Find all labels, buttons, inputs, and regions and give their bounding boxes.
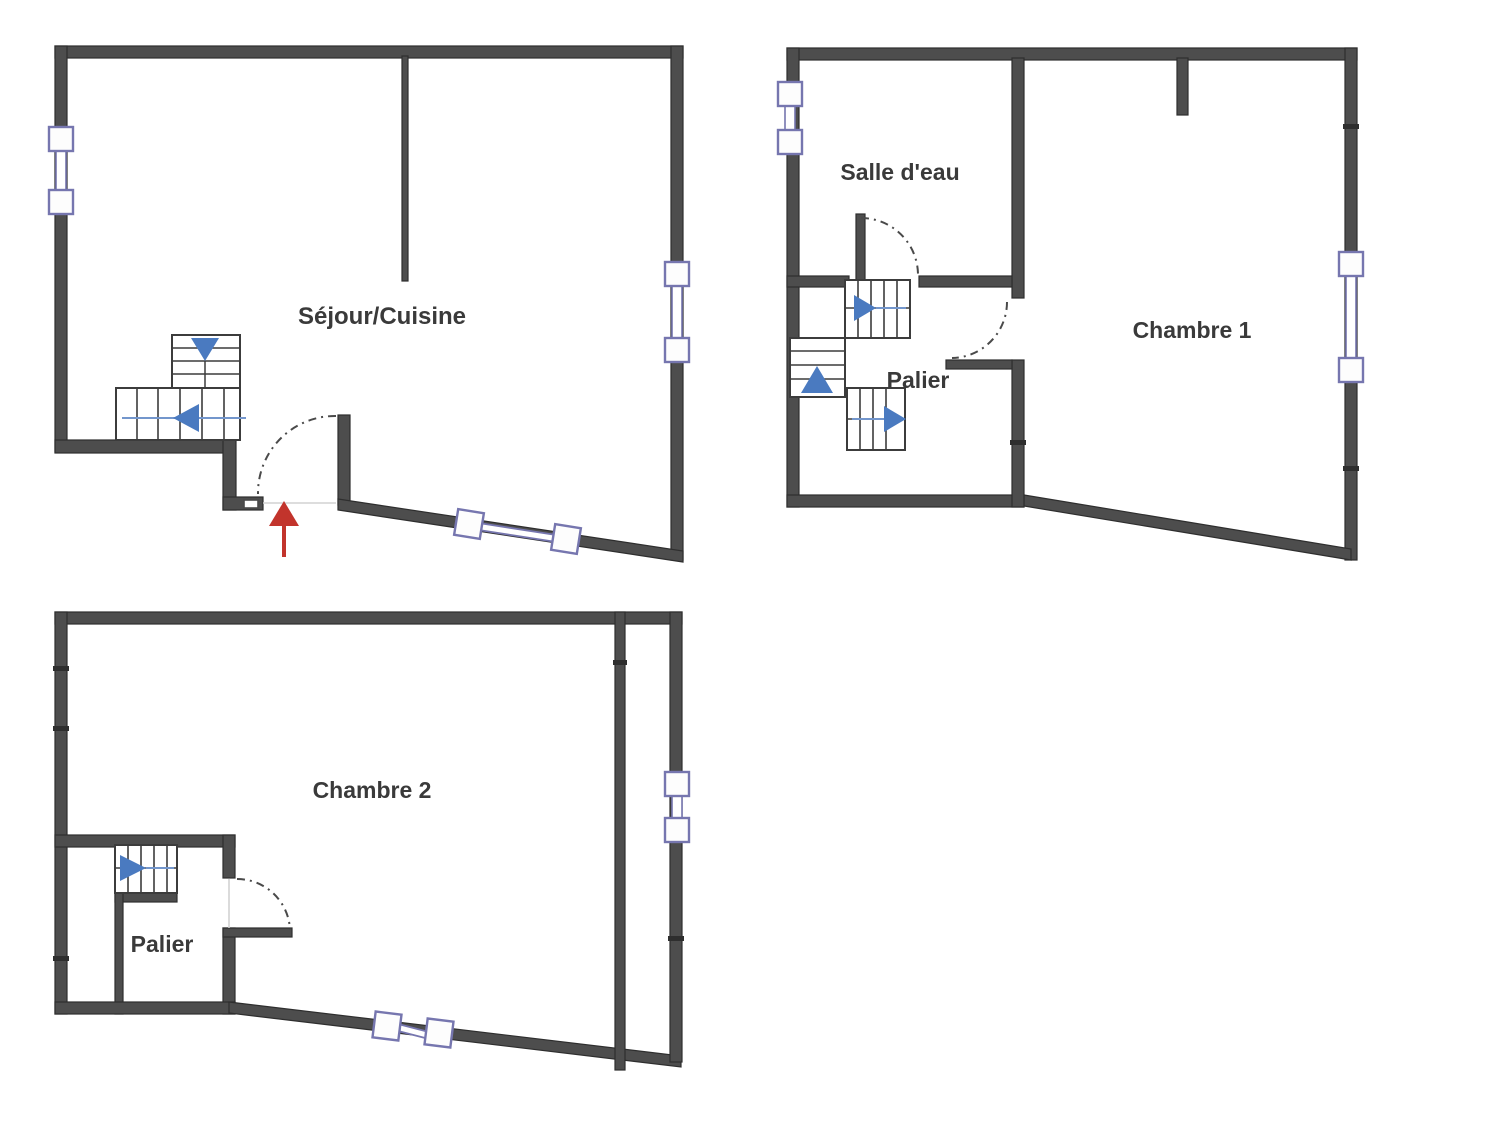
window-symbol-right [1339,252,1363,382]
room-label-chambre-1: Chambre 1 [1133,317,1252,343]
floor-plan-first: Salle d'eau Chambre 1 Palier [778,48,1363,560]
entrance-door [244,416,336,508]
window-symbol-right [665,772,689,842]
window-symbol-diagonal [373,1012,454,1048]
room-label-sejour-cuisine: Séjour/Cuisine [298,303,466,330]
window-symbol-diagonal [454,509,581,554]
room-label-palier-first: Palier [887,367,950,393]
landing-door [229,879,290,930]
diagonal-wall [1024,495,1351,560]
door-leaf [244,500,258,508]
inner-wall [615,612,625,1070]
room-label-chambre-2: Chambre 2 [313,777,432,803]
door-swing-arc [237,879,290,930]
staircase-second [115,845,177,893]
door-leaf [856,214,865,282]
room-label-palier-second: Palier [131,931,194,957]
door-swing-arc [258,416,336,494]
window-symbol-right [665,262,689,362]
staircase-ground [116,335,246,440]
room-label-salle-deau: Salle d'eau [840,159,959,185]
entrance-arrow [269,501,299,557]
diagonal-wall [229,1002,681,1067]
floor-plan-second: Chambre 2 Palier [53,612,689,1070]
floor-plan-ground: Séjour/Cuisine [49,46,689,562]
floor-plan-page: Séjour/Cuisine [0,0,1500,1125]
window-symbol-left [49,127,73,214]
floor-plan-drawing: Séjour/Cuisine [0,0,1500,1125]
wall-stub [1177,58,1188,115]
walls-second [53,612,684,1070]
staircase-first [790,280,910,450]
door-swing-arc-bedroom [952,302,1007,358]
door-swing-arc-bathroom [861,218,918,276]
partition-wall [402,56,408,281]
